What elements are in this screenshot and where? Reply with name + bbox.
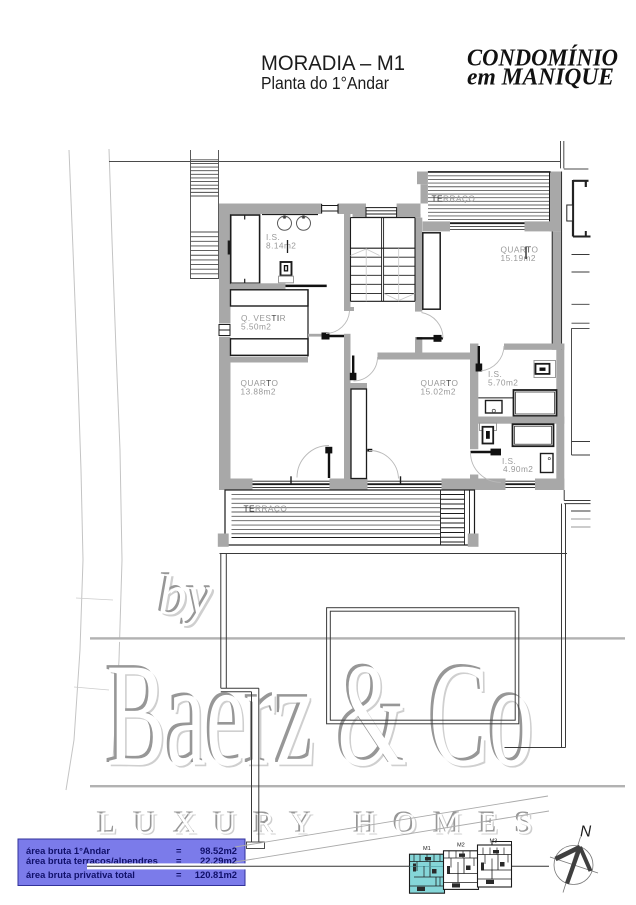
svg-text:by: by bbox=[158, 564, 213, 627]
svg-text:Baerz & Co: Baerz & Co bbox=[107, 634, 534, 798]
svg-text:N: N bbox=[580, 824, 592, 841]
svg-text:M2: M2 bbox=[457, 843, 465, 849]
svg-text:TERRAÇO: TERRAÇO bbox=[432, 194, 476, 204]
svg-text:5.70m2: 5.70m2 bbox=[488, 377, 518, 387]
svg-text:120.81m2: 120.81m2 bbox=[195, 869, 237, 880]
svg-text:15.02m2: 15.02m2 bbox=[421, 387, 456, 397]
svg-text:=: = bbox=[176, 869, 182, 880]
svg-text:M3: M3 bbox=[490, 839, 498, 845]
svg-text:15.19m2: 15.19m2 bbox=[501, 253, 536, 263]
svg-text:TERRAÇO: TERRAÇO bbox=[244, 504, 288, 514]
svg-text:MORADIA – M1: MORADIA – M1 bbox=[261, 52, 405, 75]
svg-text:5.50m2: 5.50m2 bbox=[241, 322, 271, 332]
svg-text:4.90m2: 4.90m2 bbox=[503, 464, 533, 474]
svg-text:em MANIQUE: em MANIQUE bbox=[467, 65, 614, 91]
svg-text:LUXURY HOMES: LUXURY HOMES bbox=[98, 805, 547, 840]
svg-text:8.14m2: 8.14m2 bbox=[266, 241, 296, 251]
svg-text:área bruta privativa total: área bruta privativa total bbox=[26, 869, 135, 880]
svg-text:M1: M1 bbox=[423, 846, 431, 852]
svg-text:13.88m2: 13.88m2 bbox=[241, 387, 276, 397]
svg-text:Planta do 1°Andar: Planta do 1°Andar bbox=[261, 73, 389, 93]
